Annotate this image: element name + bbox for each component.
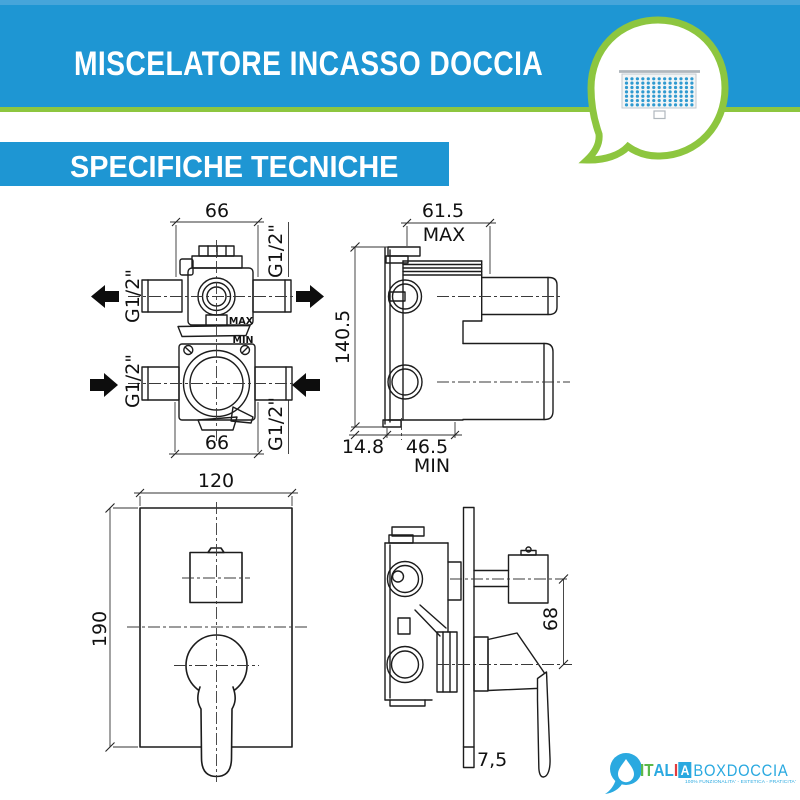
flow-arrow-out-right <box>296 285 324 308</box>
dim-label-7-5: 7,5 <box>477 749 507 771</box>
page-title: MISCELATORE INCASSO DOCCIA <box>74 45 543 84</box>
dim-label-120: 120 <box>198 470 234 492</box>
dim-label-14-8: 14.8 <box>342 436 384 458</box>
dim-label-61-5: 61.5 <box>422 200 464 222</box>
dim-label-190: 190 <box>89 611 111 647</box>
brand-logo: ITALIABOXDOCCIA 100% FUNZIONALITA' - EST… <box>604 748 800 796</box>
brand-boxdoccia: BOXDOCCIA <box>693 762 788 779</box>
dim-label-68: 68 <box>540 607 562 631</box>
thread-label-right-bottom: G1/2" <box>265 397 287 451</box>
brand-italia-it: IT <box>640 762 654 779</box>
drawing-front-plate: 120 190 <box>89 470 307 782</box>
subtitle-banner: SPECIFICHE TECNICHE <box>0 142 449 186</box>
flow-arrow-in-left <box>90 373 118 397</box>
brand-italia-al: AL <box>654 762 674 779</box>
dim-label-140-5: 140.5 <box>332 310 354 364</box>
dim-label-max2: MAX <box>423 224 465 246</box>
drawing-side-mounted: 7,5 68 <box>385 508 572 778</box>
speech-bubble <box>573 8 738 168</box>
label-min: MIN <box>233 335 254 346</box>
label-max: MAX <box>229 316 254 327</box>
thread-label-left-top: G1/2" <box>122 269 144 323</box>
dim-label-66-bottom: 66 <box>205 432 229 454</box>
thread-label-right-top: G1/2" <box>265 224 287 278</box>
drawing-front-valve: 66 66 <box>90 200 324 458</box>
brand-tagline: 100% FUNZIONALITA' - ESTETICA - PRATICIT… <box>685 779 796 784</box>
brand-italia-a: A <box>679 762 692 778</box>
thread-label-left-bottom: G1/2" <box>122 354 144 408</box>
flow-arrow-in-right <box>292 373 320 397</box>
drawing-side-valve: 61.5 MAX 140.5 <box>332 200 570 477</box>
flow-arrow-out-left <box>91 285 119 308</box>
dim-label-min2: MIN <box>414 455 450 477</box>
dim-label-66-top: 66 <box>205 200 229 222</box>
brand-italia-i: I <box>674 762 678 779</box>
page-subtitle: SPECIFICHE TECNICHE <box>70 149 398 185</box>
brand-name: ITALIABOXDOCCIA <box>640 762 788 779</box>
spec-sheet-page: { "colors": { "banner_blue": "#1e96d3", … <box>0 0 800 800</box>
